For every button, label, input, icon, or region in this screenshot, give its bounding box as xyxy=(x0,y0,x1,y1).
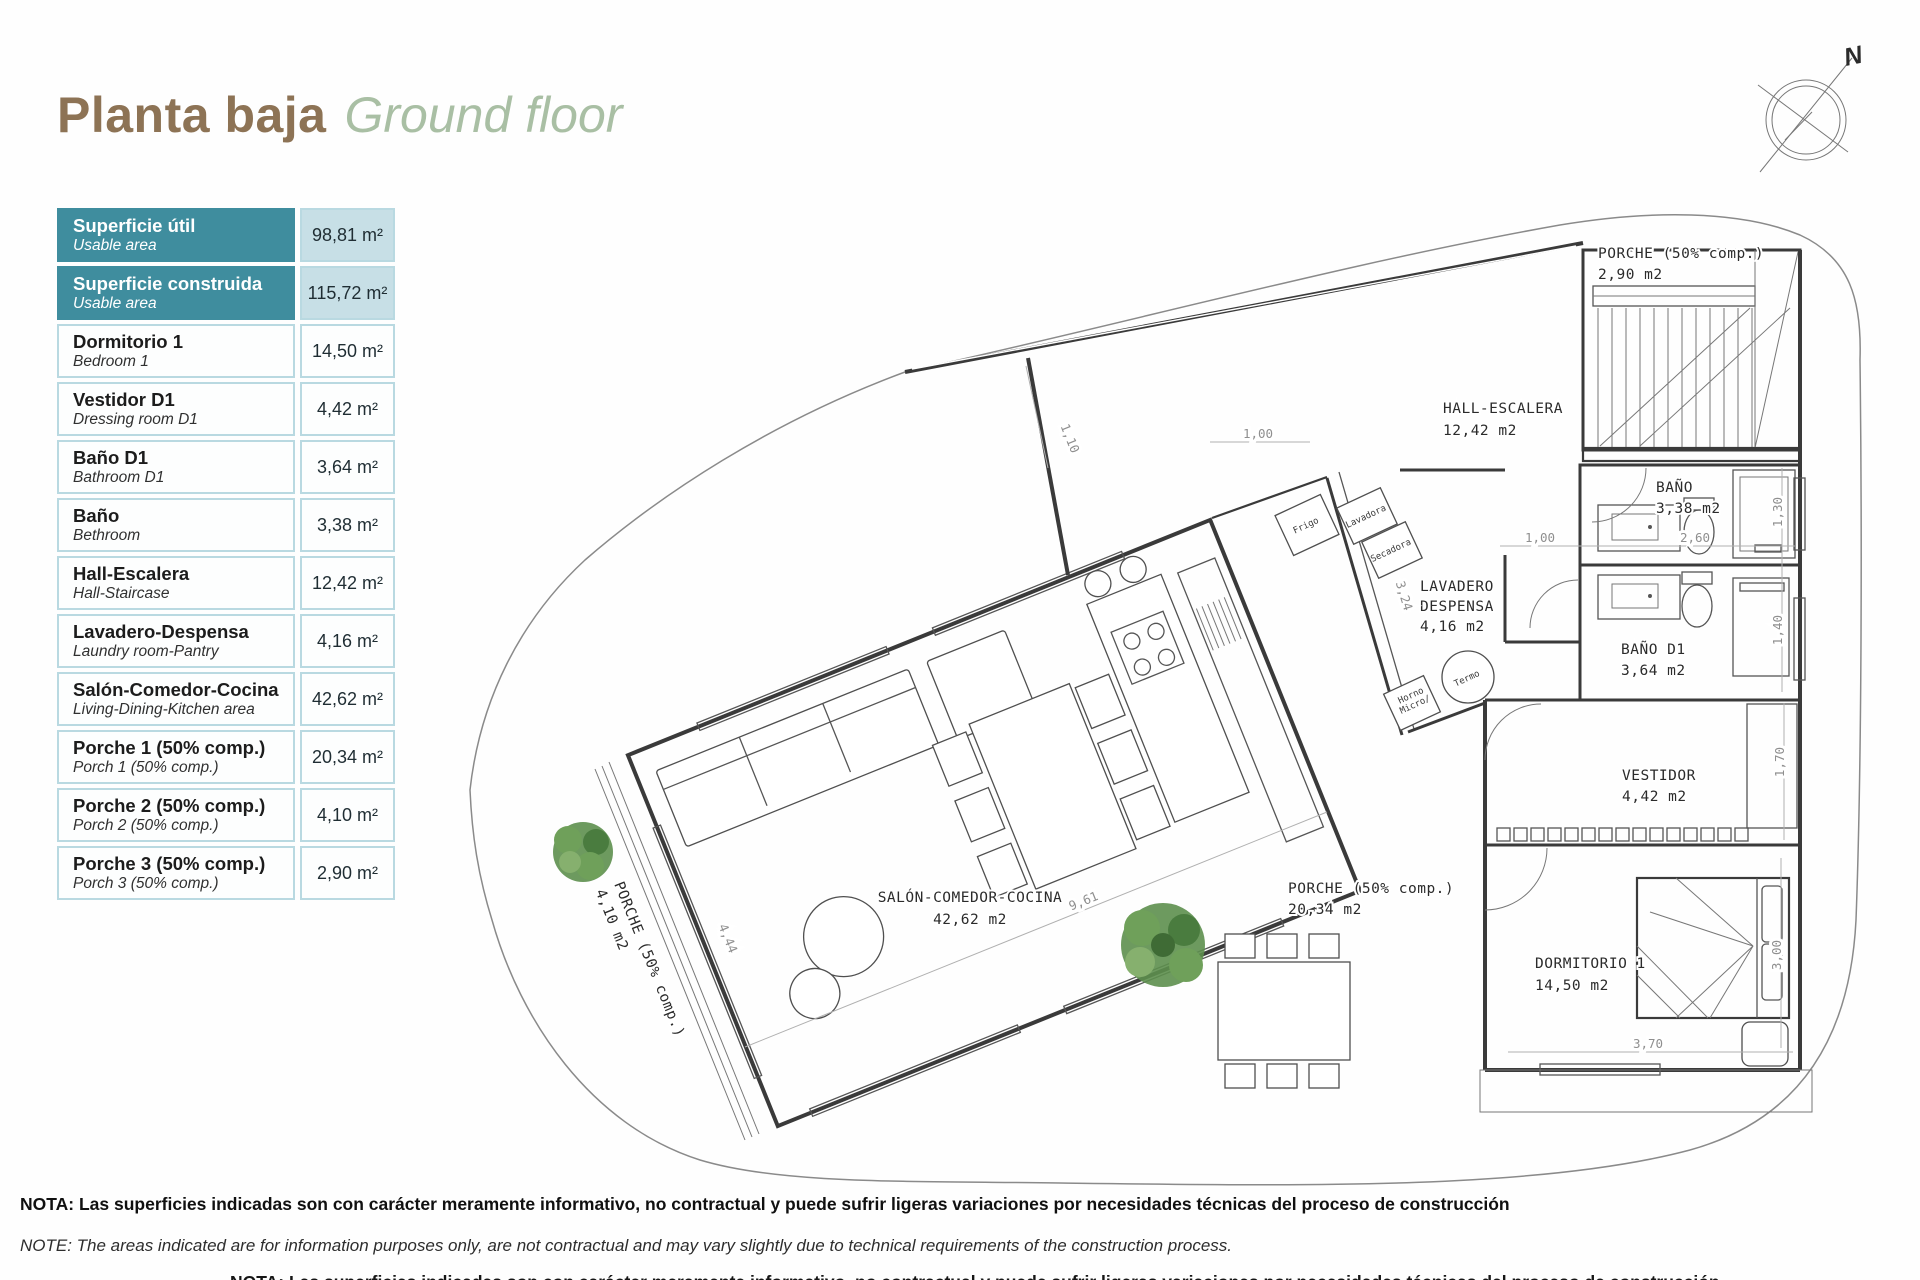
dim-1,30: 1,30 xyxy=(1770,497,1785,527)
sofa xyxy=(656,669,939,847)
note-spanish: NOTA: Las superficies indicadas son con … xyxy=(20,1194,1510,1215)
outdoor-dining-table xyxy=(1218,934,1350,1088)
label-porche-3: PORCHE (50% comp.)2,90 m2 xyxy=(1598,246,1764,283)
dim-3,24: 3,24 xyxy=(1393,579,1416,612)
rear-slab xyxy=(1480,1070,1812,1112)
dim-3,70: 3,70 xyxy=(1633,1036,1663,1051)
dim-1,70: 1,70 xyxy=(1772,747,1787,777)
label-porche-1: PORCHE (50% comp.)20,34 m2 xyxy=(1288,881,1454,918)
label-vestidor: VESTIDOR4,42 m2 xyxy=(1622,768,1696,805)
closet-dashed-row xyxy=(1497,828,1748,841)
label-salon-comedor-cocina: SALÓN-COMEDOR-COCINA42,62 m2 xyxy=(878,888,1063,928)
dim-1,00: 1,00 xyxy=(1243,426,1273,441)
dim-1,40: 1,40 xyxy=(1770,615,1785,645)
dim-1,00: 1,00 xyxy=(1525,530,1555,545)
tree-small xyxy=(553,822,613,882)
label-bano-d1: BAÑO D13,64 m2 xyxy=(1621,641,1686,679)
bottom-cropped-text: NOTA: Las superficies indicadas son con … xyxy=(230,1272,1730,1280)
toilet-d1 xyxy=(1682,572,1712,584)
note-english: NOTE: The areas indicated are for inform… xyxy=(20,1236,1232,1256)
dim-1,10: 1,10 xyxy=(1058,422,1083,456)
compass-icon: N xyxy=(1758,41,1866,172)
dim-4,44: 4,44 xyxy=(716,922,741,956)
dim-2,60: 2,60 xyxy=(1680,530,1710,545)
vanity-d1 xyxy=(1598,575,1680,619)
tree-large xyxy=(1121,903,1205,987)
label-dormitorio-1: DORMITORIO 114,50 m2 xyxy=(1535,956,1646,994)
dim-3,00: 3,00 xyxy=(1769,940,1784,970)
floor-plan: N PORCHE (50% comp.)2,90 m2HALL-ESCALERA… xyxy=(0,0,1920,1280)
dim-9,61: 9,61 xyxy=(1067,888,1101,913)
page: Planta bajaGround floor Superficie útilU… xyxy=(0,0,1920,1280)
label-lavadero-despensa: LAVADERODESPENSA4,16 m2 xyxy=(1420,579,1494,635)
label-hall-escalera: HALL-ESCALERA12,42 m2 xyxy=(1443,401,1563,439)
bed xyxy=(1637,878,1789,1018)
